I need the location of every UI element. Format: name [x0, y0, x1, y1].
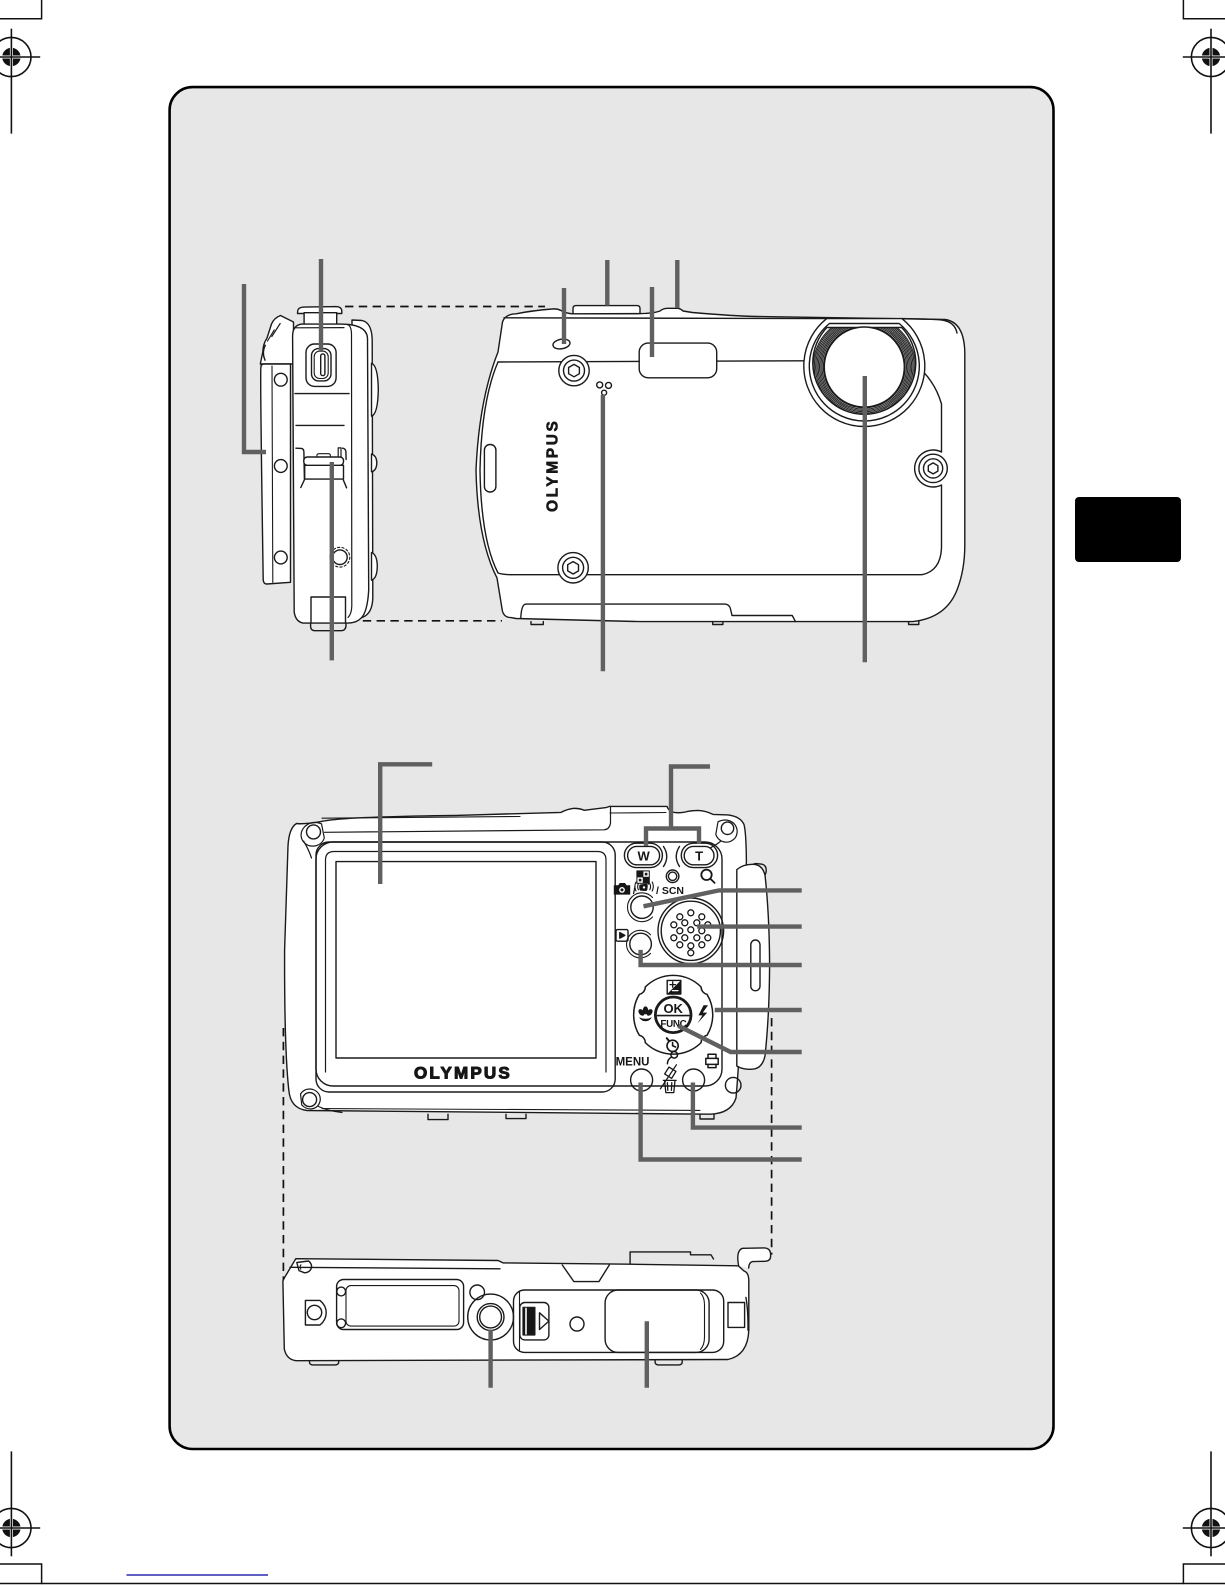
svg-text:W: W — [637, 849, 650, 864]
svg-text:OK: OK — [663, 1001, 683, 1016]
svg-text:MENU: MENU — [616, 1056, 650, 1068]
svg-text:T: T — [695, 849, 703, 864]
svg-text:/ SCN: / SCN — [656, 885, 684, 897]
svg-text:OLYMPUS: OLYMPUS — [545, 419, 562, 512]
svg-text:OLYMPUS: OLYMPUS — [414, 1064, 512, 1083]
